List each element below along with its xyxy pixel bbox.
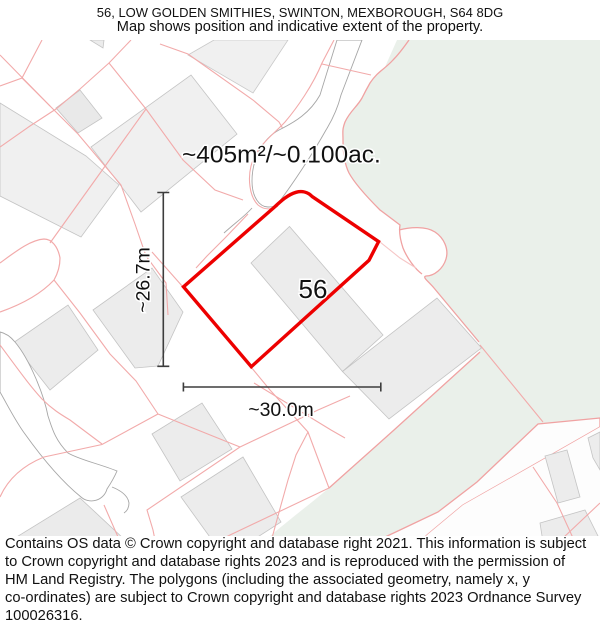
svg-text:~30.0m: ~30.0m: [248, 399, 314, 421]
svg-text:56: 56: [299, 274, 328, 304]
svg-text:~26.7m: ~26.7m: [133, 247, 155, 313]
svg-text:~405m²/~0.100ac.: ~405m²/~0.100ac.: [182, 142, 381, 169]
